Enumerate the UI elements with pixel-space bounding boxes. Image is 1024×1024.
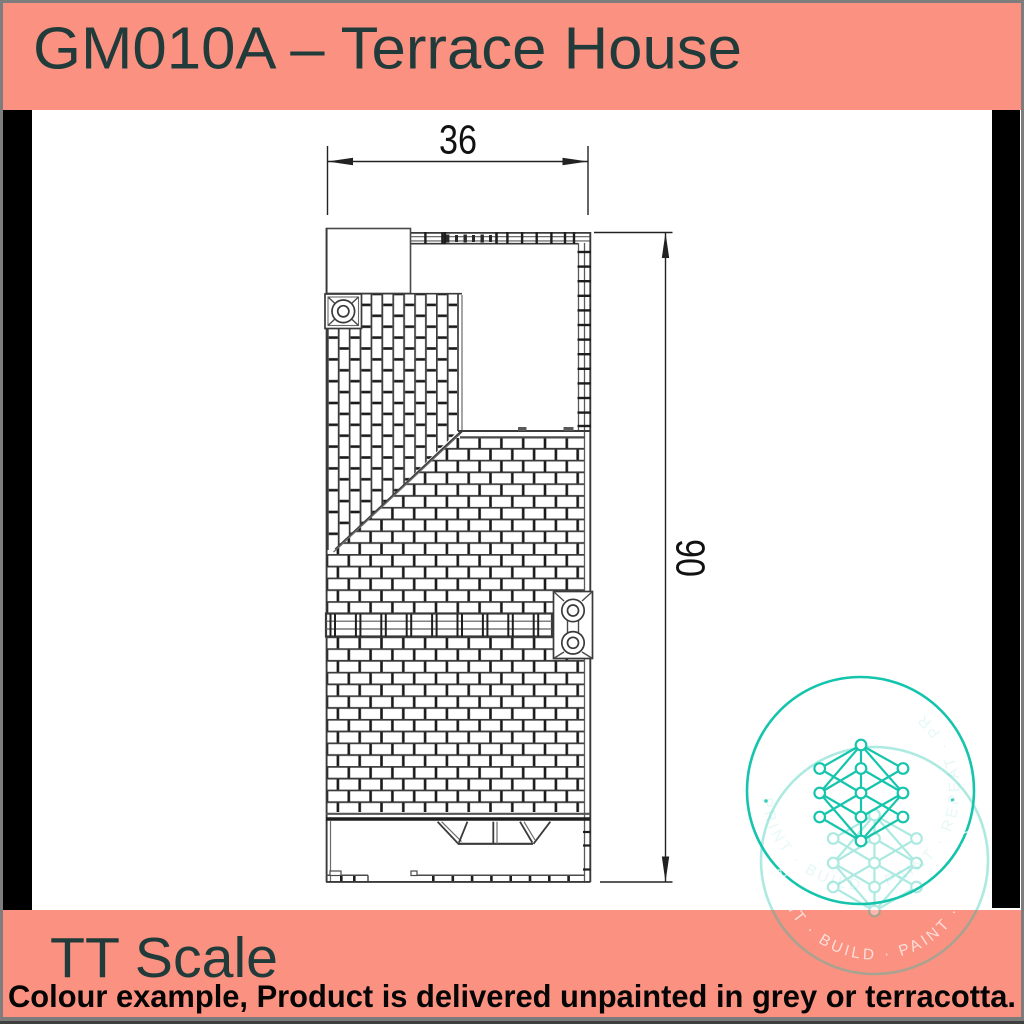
svg-text:GM010A – Terrace House: GM010A – Terrace House [33,15,742,82]
svg-text:90: 90 [668,539,714,577]
svg-text:Colour example, Product is del: Colour example, Product is delivered unp… [8,978,1016,1014]
svg-text:36: 36 [439,117,477,163]
